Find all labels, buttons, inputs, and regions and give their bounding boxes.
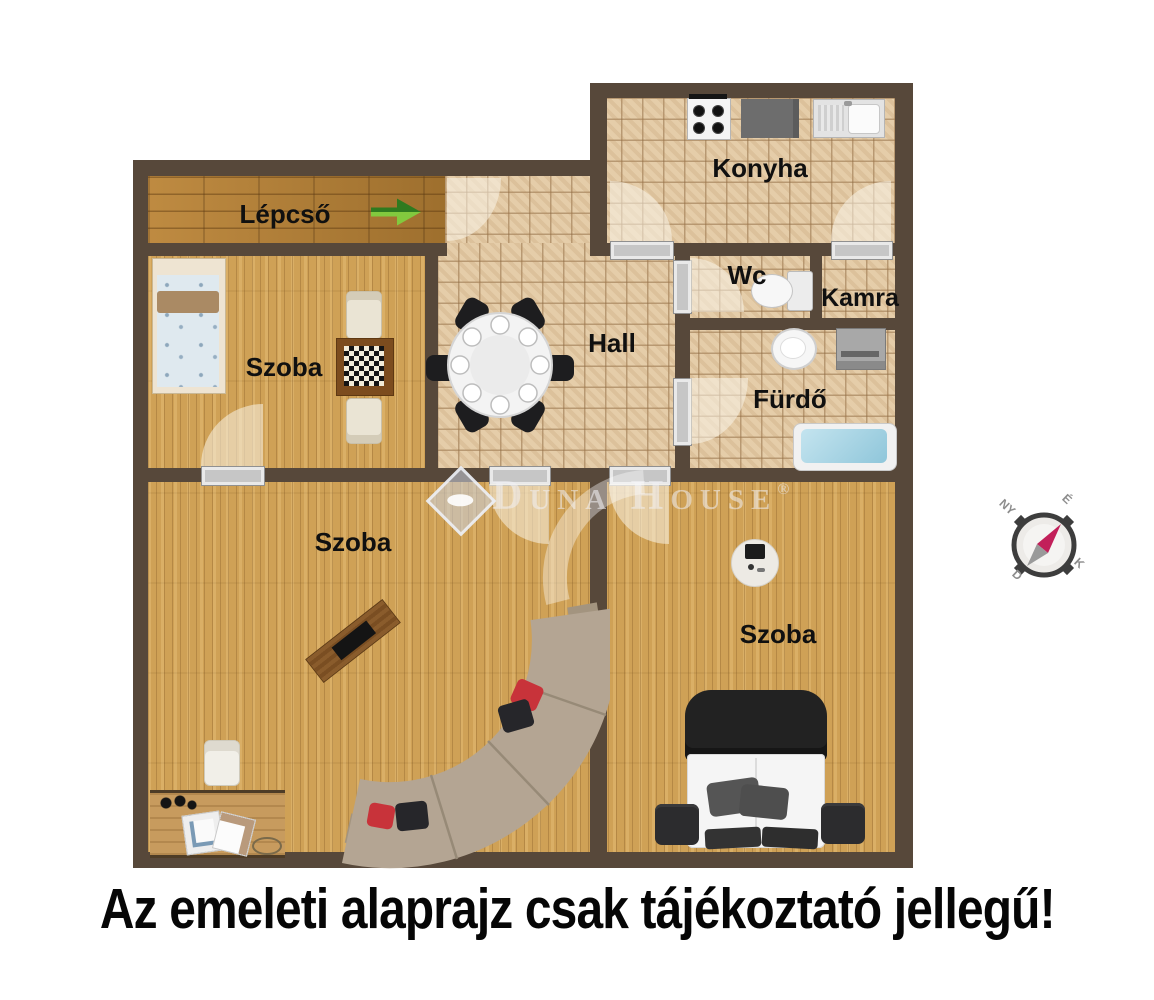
single-bed (152, 258, 226, 394)
sofa-pillow-black (395, 800, 430, 831)
chess-table (336, 338, 394, 396)
sink-faucet (844, 101, 852, 106)
decor-ring (252, 837, 282, 855)
room-label-furdo: Fürdő (753, 384, 827, 415)
wall (590, 83, 607, 256)
room-label-szoba-top-left: Szoba (246, 352, 323, 383)
ottoman (655, 804, 699, 845)
ottoman (821, 803, 865, 844)
armchair (204, 740, 240, 786)
wall (590, 83, 913, 98)
wall (133, 160, 148, 868)
sink-basin (848, 104, 880, 134)
speaker (745, 544, 765, 559)
room-label-szoba-bottom-left: Szoba (315, 527, 392, 558)
stove-hood (689, 94, 727, 99)
magazine (212, 811, 256, 857)
room-label-szoba-bottom-right: Szoba (740, 619, 817, 650)
double-bed (685, 690, 827, 848)
bed-pillow (738, 784, 789, 821)
door-sill (610, 241, 674, 260)
kitchen-sink (813, 99, 885, 138)
floor-plan-image: Duna House® Lépcső Szoba Hall Konyha Wc … (0, 0, 1154, 1000)
wall (133, 160, 607, 176)
dining-table-set (420, 285, 580, 445)
bathtub (793, 423, 897, 471)
sink-drainboard (818, 105, 844, 131)
bed-cushion (762, 827, 819, 850)
door-sill (831, 241, 893, 260)
round-rug (731, 539, 779, 587)
room-label-kamra: Kamra (821, 284, 899, 313)
room-label-lepcso: Lépcső (239, 199, 330, 230)
table-items (158, 795, 200, 811)
wall (895, 83, 913, 868)
bed-headboard (685, 690, 827, 762)
kitchen-counter (741, 99, 799, 138)
chair (346, 291, 382, 339)
stove (687, 98, 731, 140)
room-label-hall: Hall (588, 328, 636, 359)
room-label-wc: Wc (728, 260, 767, 291)
wall (133, 243, 447, 256)
chess-board (344, 346, 384, 386)
disclaimer-banner: Az emeleti alaprajz csak tájékoztató jel… (0, 876, 1154, 942)
watermark-swirl (540, 470, 670, 620)
room-label-konyha: Konyha (712, 153, 807, 184)
registered-mark: ® (777, 481, 796, 498)
washing-machine (836, 328, 886, 370)
coffee-table (150, 790, 285, 858)
disclaimer-text: Az emeleti alaprajz csak tájékoztató jel… (100, 876, 1055, 942)
sofa-pillow-red (366, 802, 396, 830)
bed-pillow (157, 291, 219, 313)
bathroom-sink (771, 328, 817, 370)
bed-cushion (705, 827, 762, 850)
